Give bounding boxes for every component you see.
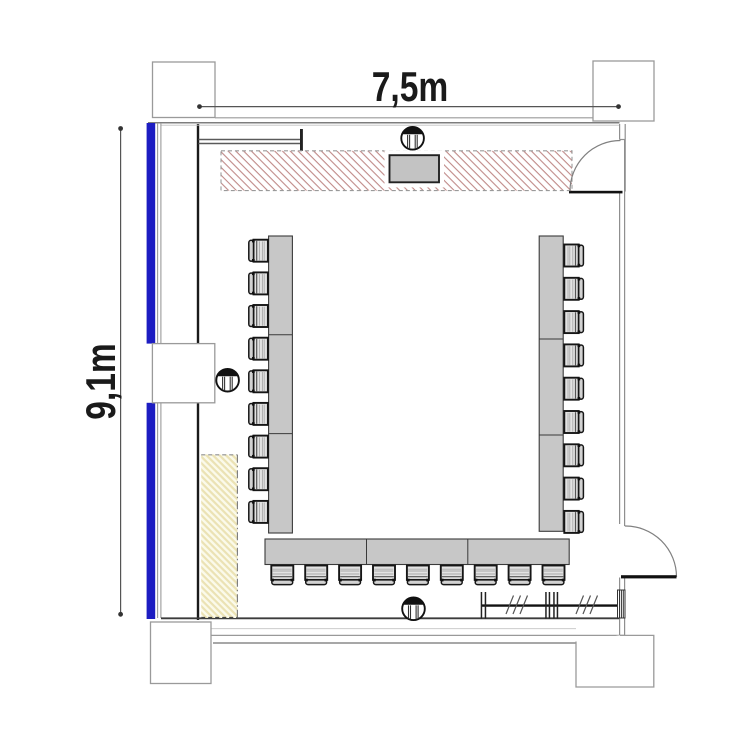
svg-text:9,1m: 9,1m [79, 343, 125, 420]
svg-text:7,5m: 7,5m [372, 65, 449, 111]
